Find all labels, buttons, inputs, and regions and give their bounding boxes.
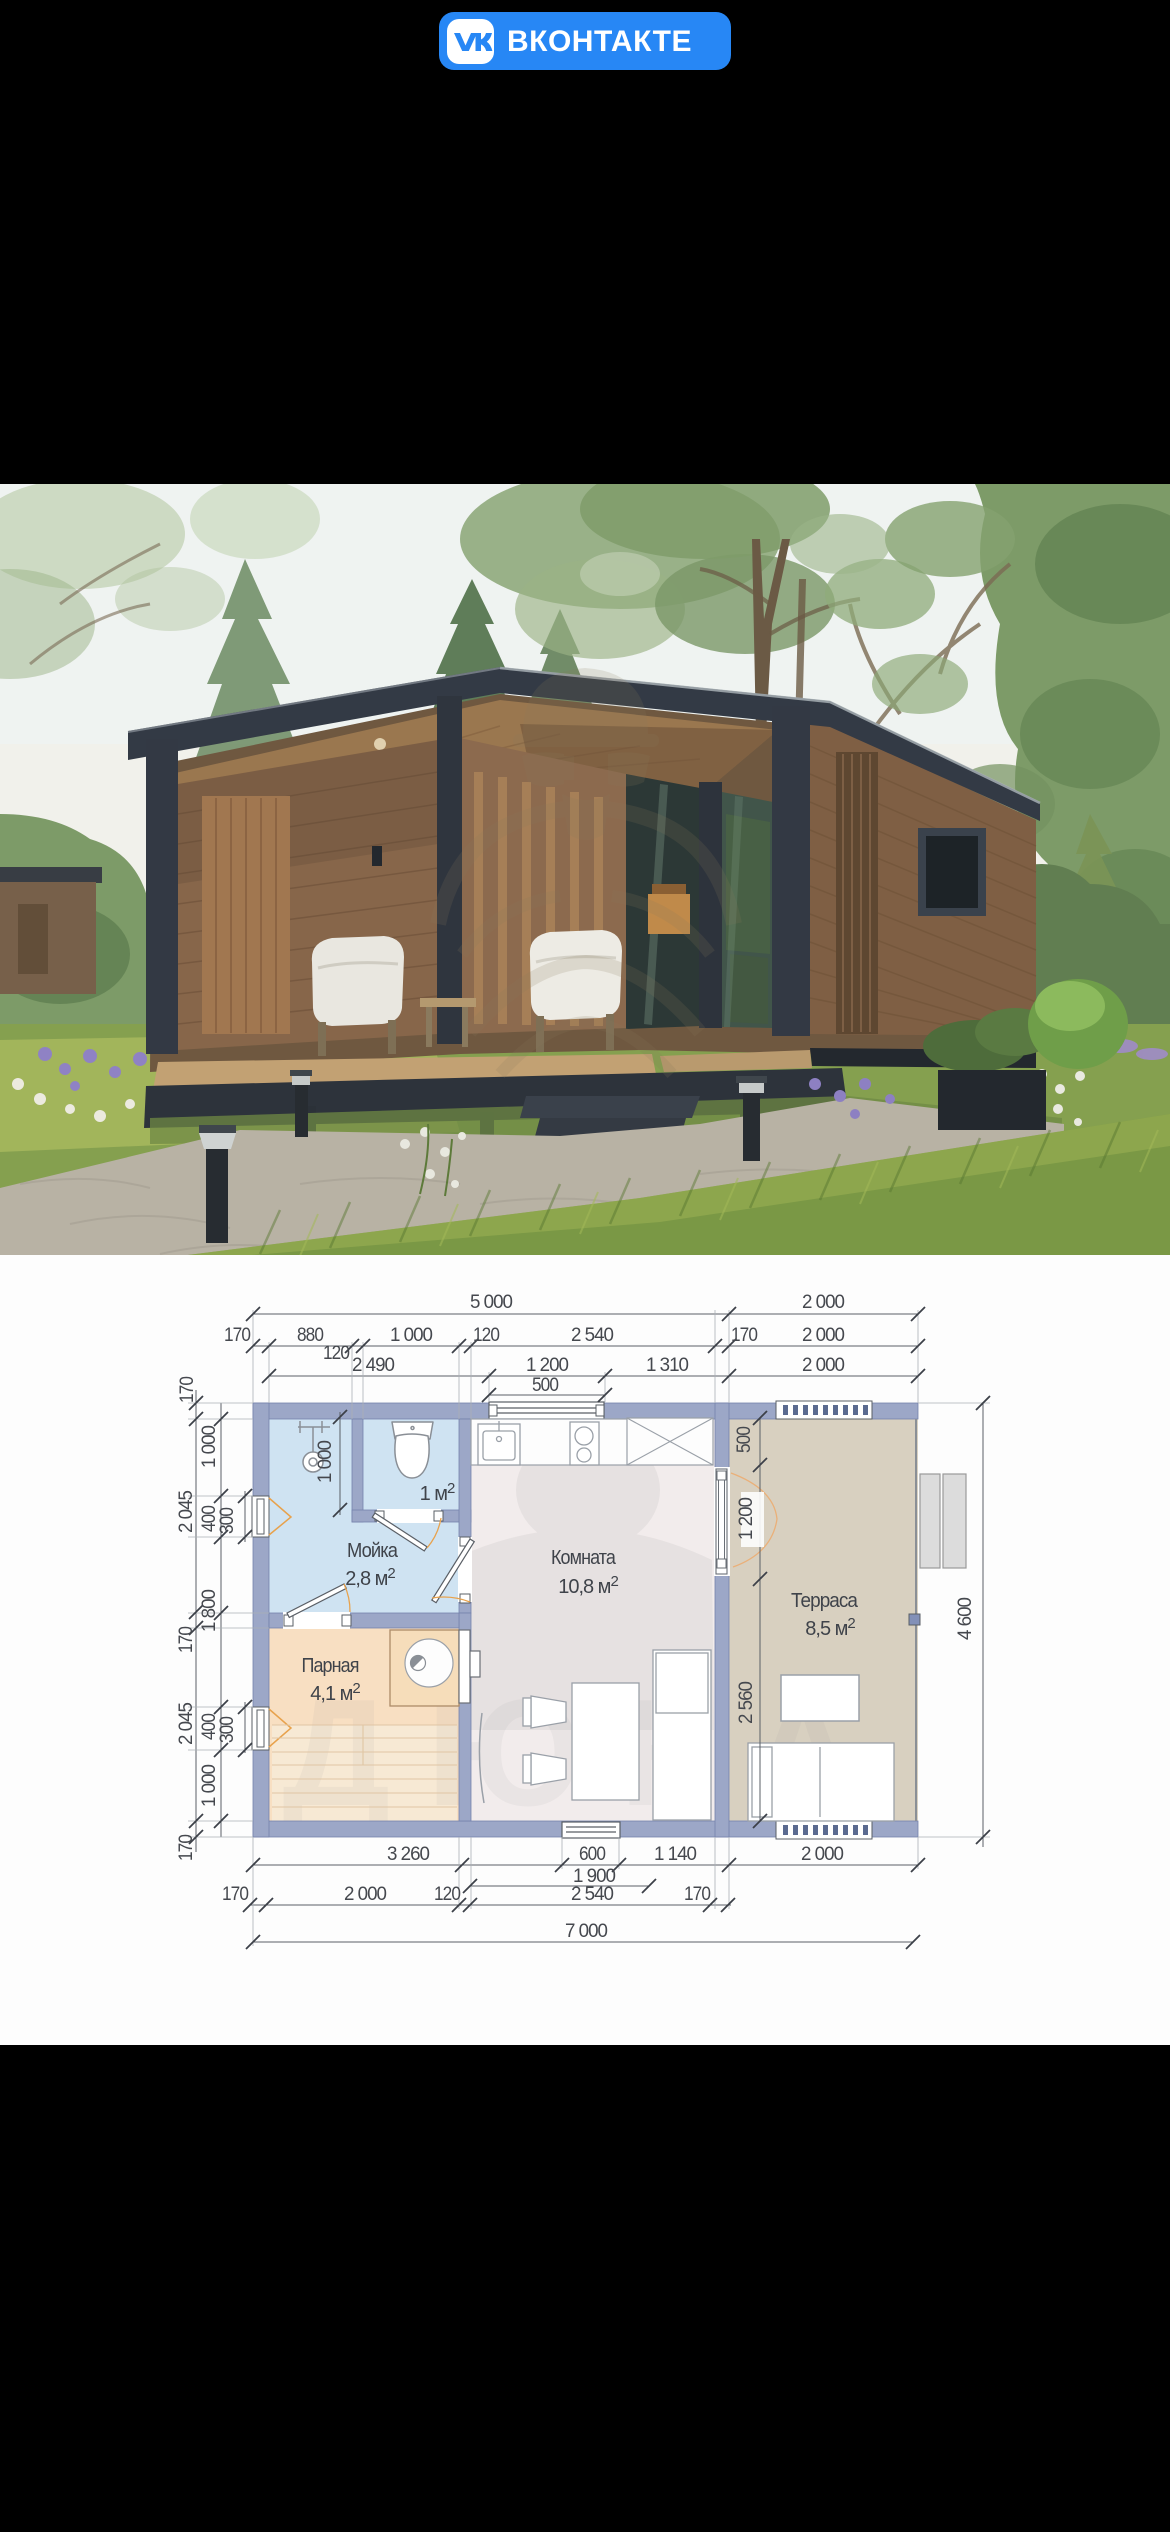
svg-text:1 310: 1 310	[646, 1355, 688, 1376]
svg-text:500: 500	[532, 1375, 558, 1396]
svg-text:120: 120	[434, 1884, 460, 1905]
svg-text:1 800: 1 800	[199, 1590, 220, 1632]
svg-text:120: 120	[323, 1343, 349, 1364]
svg-text:170: 170	[224, 1325, 250, 1346]
svg-text:2 000: 2 000	[344, 1884, 386, 1905]
svg-text:Комната: Комната	[551, 1547, 617, 1569]
svg-text:880: 880	[297, 1325, 323, 1346]
svg-text:1 200: 1 200	[736, 1498, 757, 1540]
svg-text:170: 170	[177, 1377, 198, 1403]
svg-text:Терраса: Терраса	[791, 1590, 859, 1612]
svg-text:2 560: 2 560	[736, 1682, 757, 1724]
svg-text:1 000: 1 000	[199, 1426, 220, 1468]
svg-text:1 000: 1 000	[390, 1325, 432, 1346]
svg-text:170: 170	[176, 1627, 197, 1653]
svg-text:Мойка: Мойка	[347, 1540, 399, 1562]
svg-text:2 000: 2 000	[802, 1325, 844, 1346]
svg-text:10,8 м2: 10,8 м2	[558, 1573, 618, 1598]
svg-text:1 000: 1 000	[199, 1765, 220, 1807]
svg-text:300: 300	[217, 1717, 238, 1743]
svg-text:4 600: 4 600	[955, 1598, 976, 1640]
svg-text:2 045: 2 045	[176, 1491, 197, 1533]
svg-text:120: 120	[473, 1325, 499, 1346]
svg-text:2 540: 2 540	[571, 1325, 613, 1346]
svg-text:Парная: Парная	[302, 1655, 359, 1677]
svg-text:3 260: 3 260	[387, 1844, 429, 1865]
svg-text:2 000: 2 000	[802, 1355, 844, 1376]
svg-text:1 140: 1 140	[654, 1844, 696, 1865]
svg-text:1 200: 1 200	[526, 1355, 568, 1376]
svg-text:500: 500	[734, 1427, 755, 1453]
svg-text:300: 300	[217, 1508, 238, 1534]
svg-text:2 000: 2 000	[801, 1844, 843, 1865]
svg-text:600: 600	[579, 1844, 605, 1865]
svg-text:170: 170	[731, 1325, 757, 1346]
svg-text:2 540: 2 540	[571, 1884, 613, 1905]
svg-text:5 000: 5 000	[470, 1292, 512, 1313]
svg-text:170: 170	[176, 1835, 197, 1861]
svg-text:2 045: 2 045	[176, 1703, 197, 1745]
svg-text:1 000: 1 000	[315, 1441, 336, 1483]
svg-text:2 490: 2 490	[352, 1355, 394, 1376]
svg-text:2 000: 2 000	[802, 1292, 844, 1313]
svg-text:7 000: 7 000	[565, 1921, 607, 1942]
svg-text:170: 170	[684, 1884, 710, 1905]
svg-text:170: 170	[222, 1884, 248, 1905]
